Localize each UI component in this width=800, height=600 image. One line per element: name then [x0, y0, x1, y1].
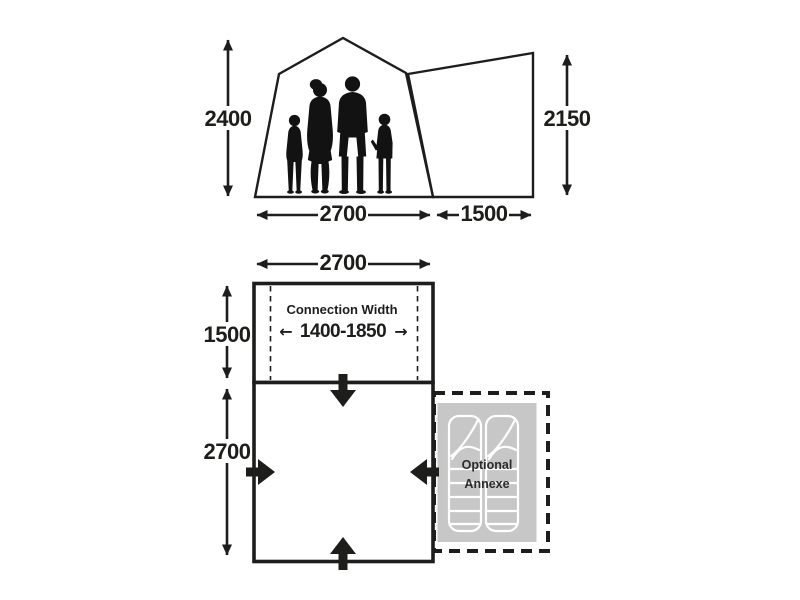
elevation-view: 2400 2150 2700 1500 — [203, 38, 592, 226]
optional-annexe-label-line2: Annexe — [464, 477, 509, 491]
floor-plan-view: Optional Annexe Connection Width 1400-18… — [202, 250, 548, 570]
dim-plan-width-label: 2700 — [320, 250, 367, 275]
dim-width-annexe-label: 1500 — [461, 201, 508, 226]
arrow-right-icon: → — [394, 322, 407, 341]
dim-plan-connection-depth-label: 1500 — [204, 322, 251, 347]
dim-width-annexe: 1500 — [437, 201, 531, 226]
optional-annexe-label-line1: Optional — [462, 458, 513, 472]
dim-width-main: 2700 — [257, 201, 430, 226]
dim-plan-main-depth: 2700 — [202, 389, 252, 555]
dim-height-annexe-label: 2150 — [544, 106, 591, 131]
dim-plan-width: 2700 — [257, 250, 430, 275]
optional-annexe-zone: Optional Annexe — [434, 393, 548, 551]
dim-plan-main-depth-label: 2700 — [204, 439, 251, 464]
connection-width-label: Connection Width — [286, 302, 397, 317]
diagram-canvas: 2400 2150 2700 1500 — [0, 0, 800, 600]
dim-width-main-label: 2700 — [320, 201, 367, 226]
arrow-left-icon: ← — [279, 322, 292, 341]
plan-main-section — [254, 383, 433, 562]
dim-height-annexe: 2150 — [542, 55, 592, 195]
connection-width-range: 1400-1850 — [300, 321, 386, 342]
tent-dimension-diagram: 2400 2150 2700 1500 — [0, 0, 800, 600]
dim-height-main: 2400 — [203, 40, 253, 196]
dim-plan-connection-depth: 1500 — [202, 286, 252, 378]
dim-height-main-label: 2400 — [205, 106, 252, 131]
